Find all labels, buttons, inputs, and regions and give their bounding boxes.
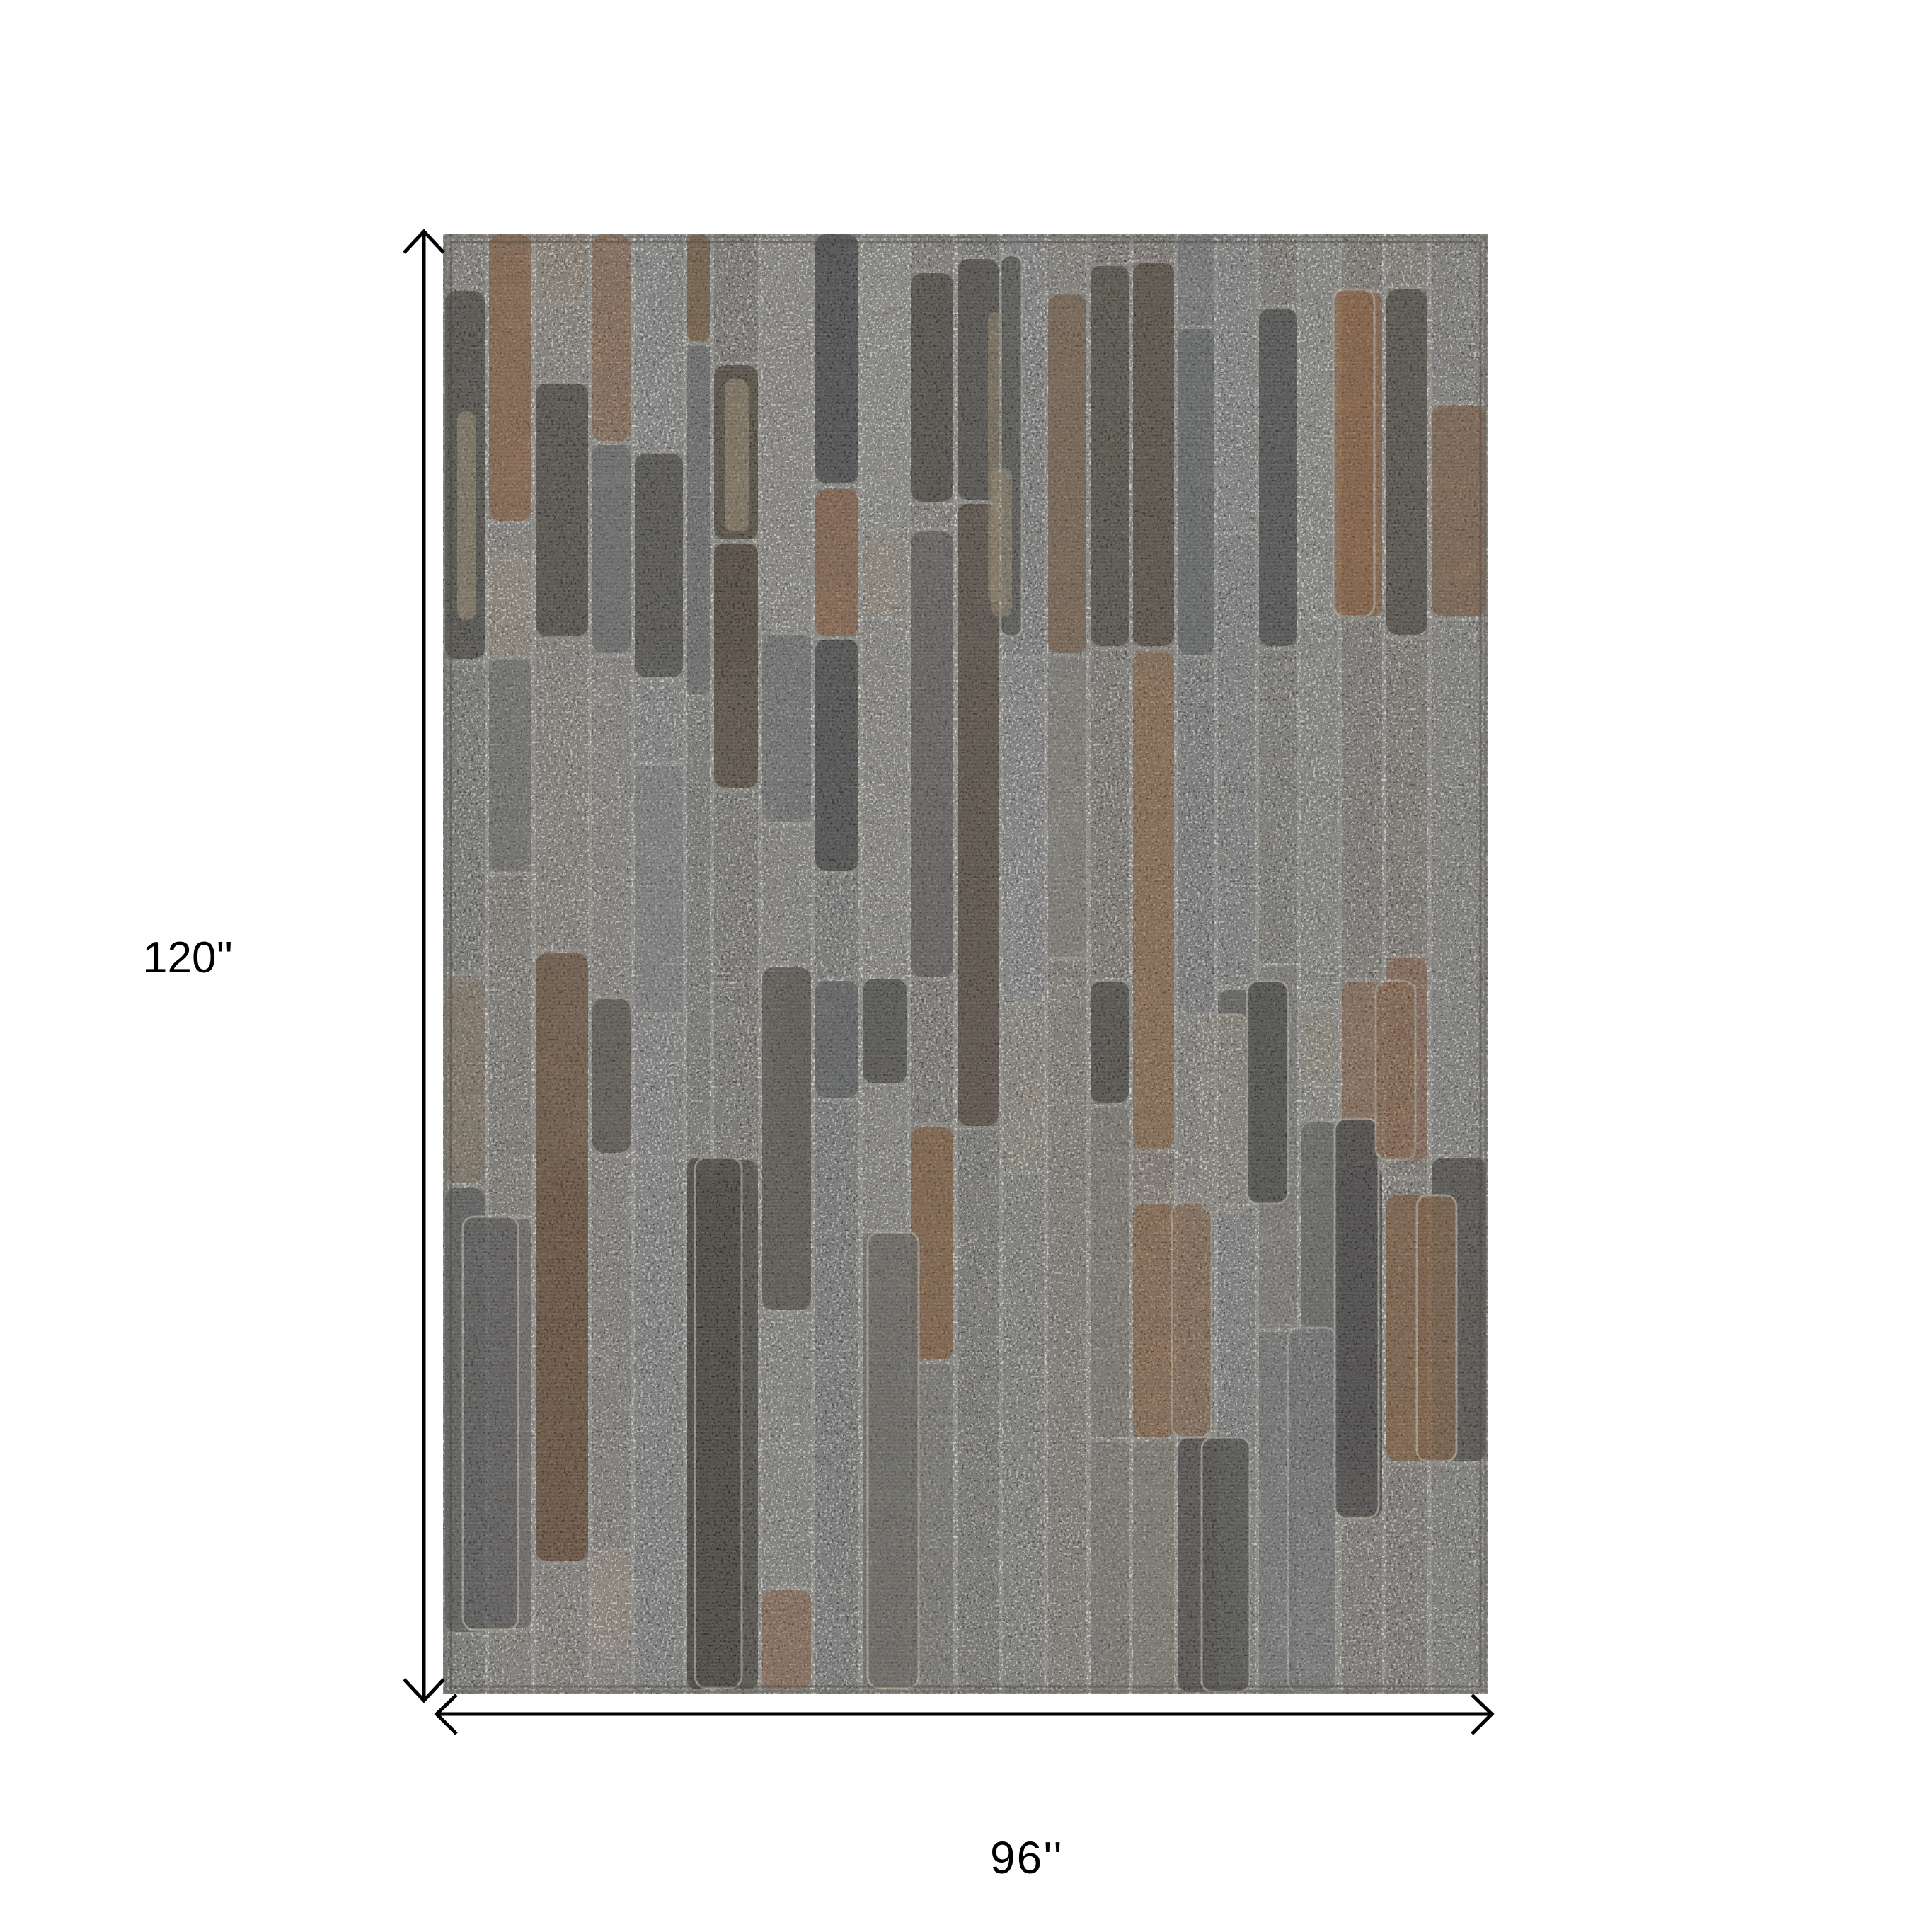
svg-text:120'': 120'': [143, 933, 233, 982]
svg-text:96'': 96'': [990, 1832, 1064, 1883]
